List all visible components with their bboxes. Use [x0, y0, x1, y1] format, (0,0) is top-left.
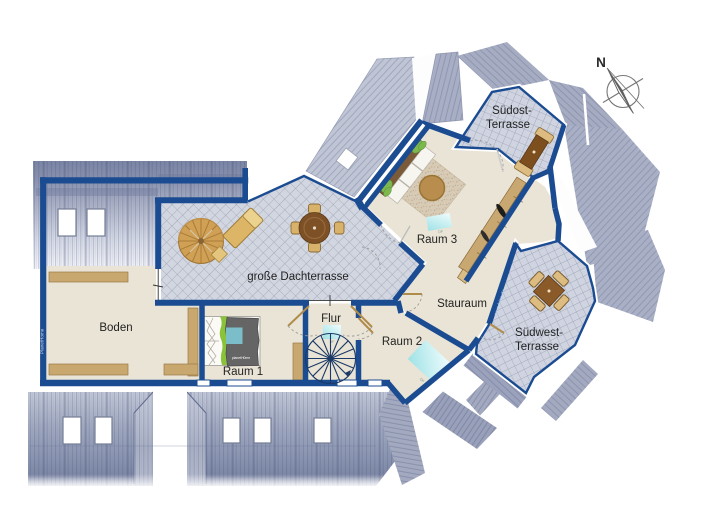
svg-text:Raum 2: Raum 2 [382, 336, 422, 348]
svg-text:Raum 3: Raum 3 [417, 234, 457, 246]
svg-text:Boden: Boden [99, 322, 132, 334]
svg-text:planetH0me: planetH0me [232, 356, 250, 360]
svg-text:Terrasse: Terrasse [486, 119, 530, 131]
svg-text:Raum 1: Raum 1 [223, 366, 263, 378]
svg-text:Südwest-: Südwest- [515, 327, 563, 339]
svg-text:große Dachterrasse: große Dachterrasse [247, 271, 349, 283]
svg-text:Südost-: Südost- [492, 105, 532, 117]
svg-text:Flur: Flur [321, 313, 341, 325]
svg-text:PlanetHome: PlanetHome [40, 328, 45, 354]
svg-text:N: N [596, 55, 606, 70]
svg-text:Terrasse: Terrasse [515, 341, 559, 353]
svg-text:Stauraum: Stauraum [437, 298, 487, 310]
